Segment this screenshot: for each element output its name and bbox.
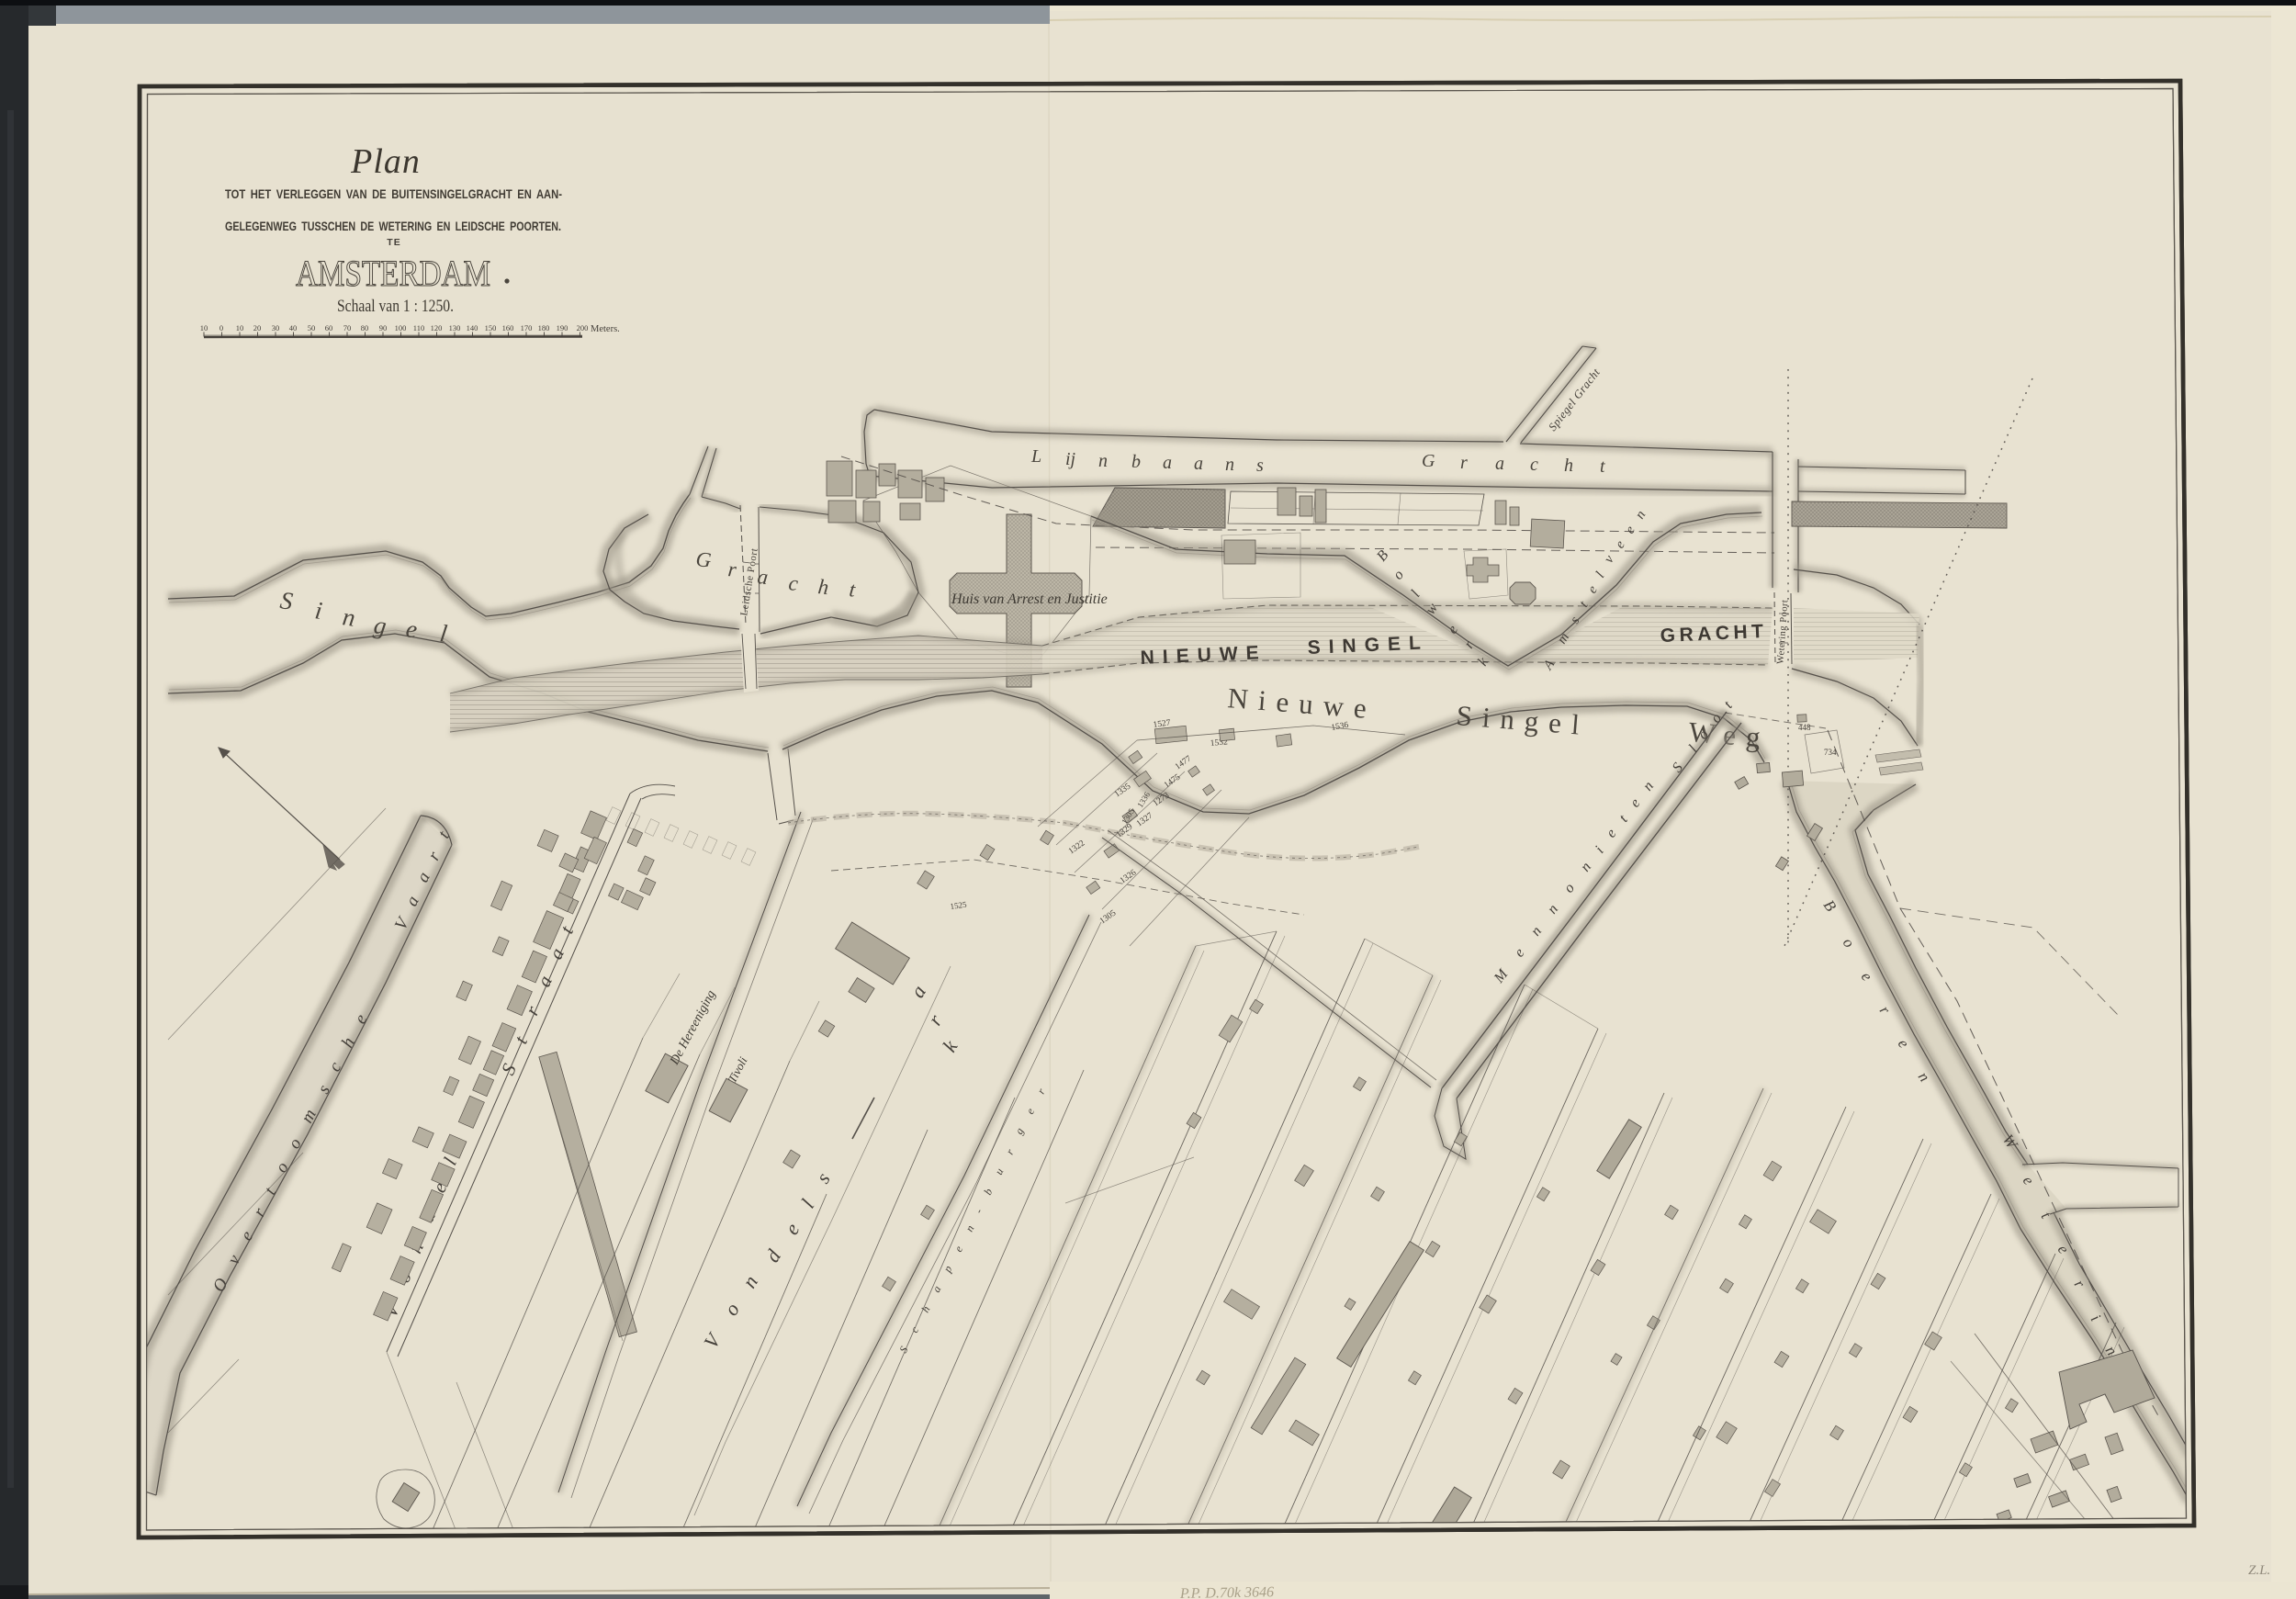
svg-text:20: 20: [253, 323, 262, 332]
svg-text:200: 200: [577, 323, 589, 332]
svg-text:60: 60: [325, 323, 333, 332]
svg-text:170: 170: [521, 323, 533, 332]
svg-text:t: t: [1600, 456, 1605, 477]
svg-text:n: n: [1098, 451, 1108, 471]
svg-text:190: 190: [557, 323, 568, 332]
svg-text:150: 150: [485, 323, 497, 332]
svg-text:180: 180: [538, 323, 550, 332]
svg-text:c: c: [1530, 455, 1538, 475]
svg-text:a: a: [1495, 454, 1504, 474]
svg-text:100: 100: [395, 323, 407, 332]
svg-text:130: 130: [449, 323, 461, 332]
svg-text:30: 30: [272, 323, 280, 332]
svg-text:10: 10: [236, 323, 244, 332]
svg-text:Huis van Arrest en Justitie: Huis van Arrest en Justitie: [951, 591, 1108, 607]
svg-text:Z.L.: Z.L.: [2248, 1563, 2270, 1578]
svg-text:80: 80: [361, 323, 369, 332]
svg-text:120: 120: [431, 323, 443, 332]
svg-text:G: G: [1422, 451, 1435, 471]
svg-text:40: 40: [289, 323, 298, 332]
svg-text:ij: ij: [1065, 449, 1076, 469]
svg-text:n: n: [1225, 455, 1234, 475]
svg-text:h: h: [1564, 456, 1573, 476]
svg-text:160: 160: [502, 323, 514, 332]
svg-text:P.P. D.70k 3646: P.P. D.70k 3646: [1179, 1584, 1274, 1599]
svg-text:a: a: [1194, 454, 1203, 474]
svg-text:Meters.: Meters.: [591, 324, 620, 334]
svg-text:110: 110: [413, 323, 424, 332]
svg-text:734: 734: [1824, 748, 1837, 757]
svg-text:G: G: [694, 547, 713, 572]
svg-text:Plan: Plan: [350, 142, 421, 181]
svg-text:a: a: [1163, 453, 1172, 473]
svg-text:AMSTERDAM: AMSTERDAM: [296, 253, 490, 294]
svg-text:GELEGENWEG TUSSCHEN DE WETERIN: GELEGENWEG TUSSCHEN DE WETERING EN LEIDS…: [225, 219, 561, 233]
svg-text:70: 70: [343, 323, 352, 332]
svg-text:r: r: [1460, 453, 1468, 473]
svg-text:Schaal van 1 : 1250.: Schaal van 1 : 1250.: [337, 298, 454, 316]
svg-text:50: 50: [308, 323, 316, 332]
svg-text:b: b: [1131, 452, 1141, 472]
svg-text:0: 0: [219, 323, 223, 332]
svg-text:TOT HET VERLEGGEN VAN DE BUITE: TOT HET VERLEGGEN VAN DE BUITENSINGELGRA…: [225, 186, 562, 201]
svg-text:90: 90: [379, 323, 388, 332]
svg-text:140: 140: [467, 323, 478, 332]
svg-text:s: s: [1256, 456, 1264, 476]
svg-text:L: L: [1030, 446, 1041, 467]
svg-text:10: 10: [200, 323, 208, 332]
svg-text:TE: TE: [387, 237, 400, 248]
